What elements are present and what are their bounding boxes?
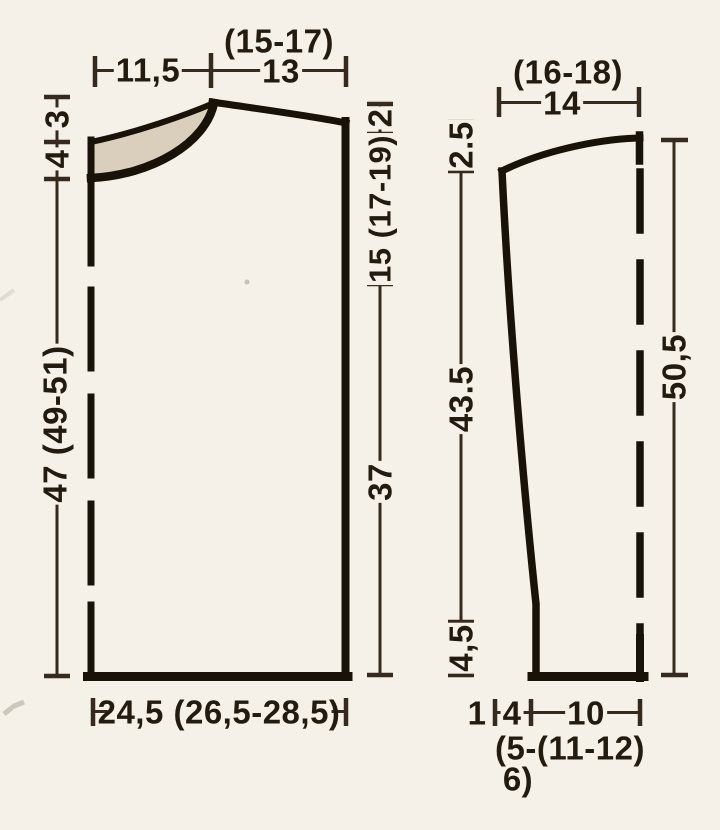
- sleeve-bottom-sizes-line2: 6): [503, 763, 533, 796]
- paper-smudge: [0, 290, 14, 300]
- body-shoulder-drop-label: 2: [364, 107, 397, 130]
- body-left-band-segment-label: 4: [41, 148, 74, 171]
- sleeve-left-edge: [502, 171, 536, 677]
- sleeve-bottom-right-label: 10: [565, 697, 607, 730]
- pattern-schematic: (15-17) 11,5 13 3 4 47 (49-51) 2 15 (17-…: [0, 0, 720, 830]
- body-top-right-width-label: 13: [260, 55, 302, 88]
- paper-smudge: [4, 702, 24, 714]
- sleeve-cuff-height-label: 4,5: [445, 622, 478, 673]
- body-right-upper-label: 15 (17-19): [365, 133, 396, 285]
- sleeve-side-length-label: 43.5: [445, 364, 478, 434]
- body-right-lower-label: 37: [364, 461, 397, 503]
- body-bottom-width-label: 24,5 (26,5-28,5): [98, 696, 341, 729]
- body-left-top-segment-label: 3: [41, 108, 74, 131]
- sleeve-total-length-label: 50,5: [658, 332, 691, 402]
- sleeve-bottom-left-label: 1: [468, 697, 487, 730]
- body-top-left-width-label: 11,5: [114, 54, 182, 87]
- sleeve-cap-edge: [502, 138, 640, 171]
- sleeve-cap-height-label: 2.5: [445, 119, 478, 170]
- paper-speck: [245, 280, 250, 285]
- sleeve-bottom-mid-label: 4: [501, 697, 524, 730]
- body-shoulder-edge: [212, 102, 346, 123]
- sleeve-top-width-label: 14: [541, 87, 583, 120]
- body-left-length-label: 47 (49-51): [39, 343, 72, 504]
